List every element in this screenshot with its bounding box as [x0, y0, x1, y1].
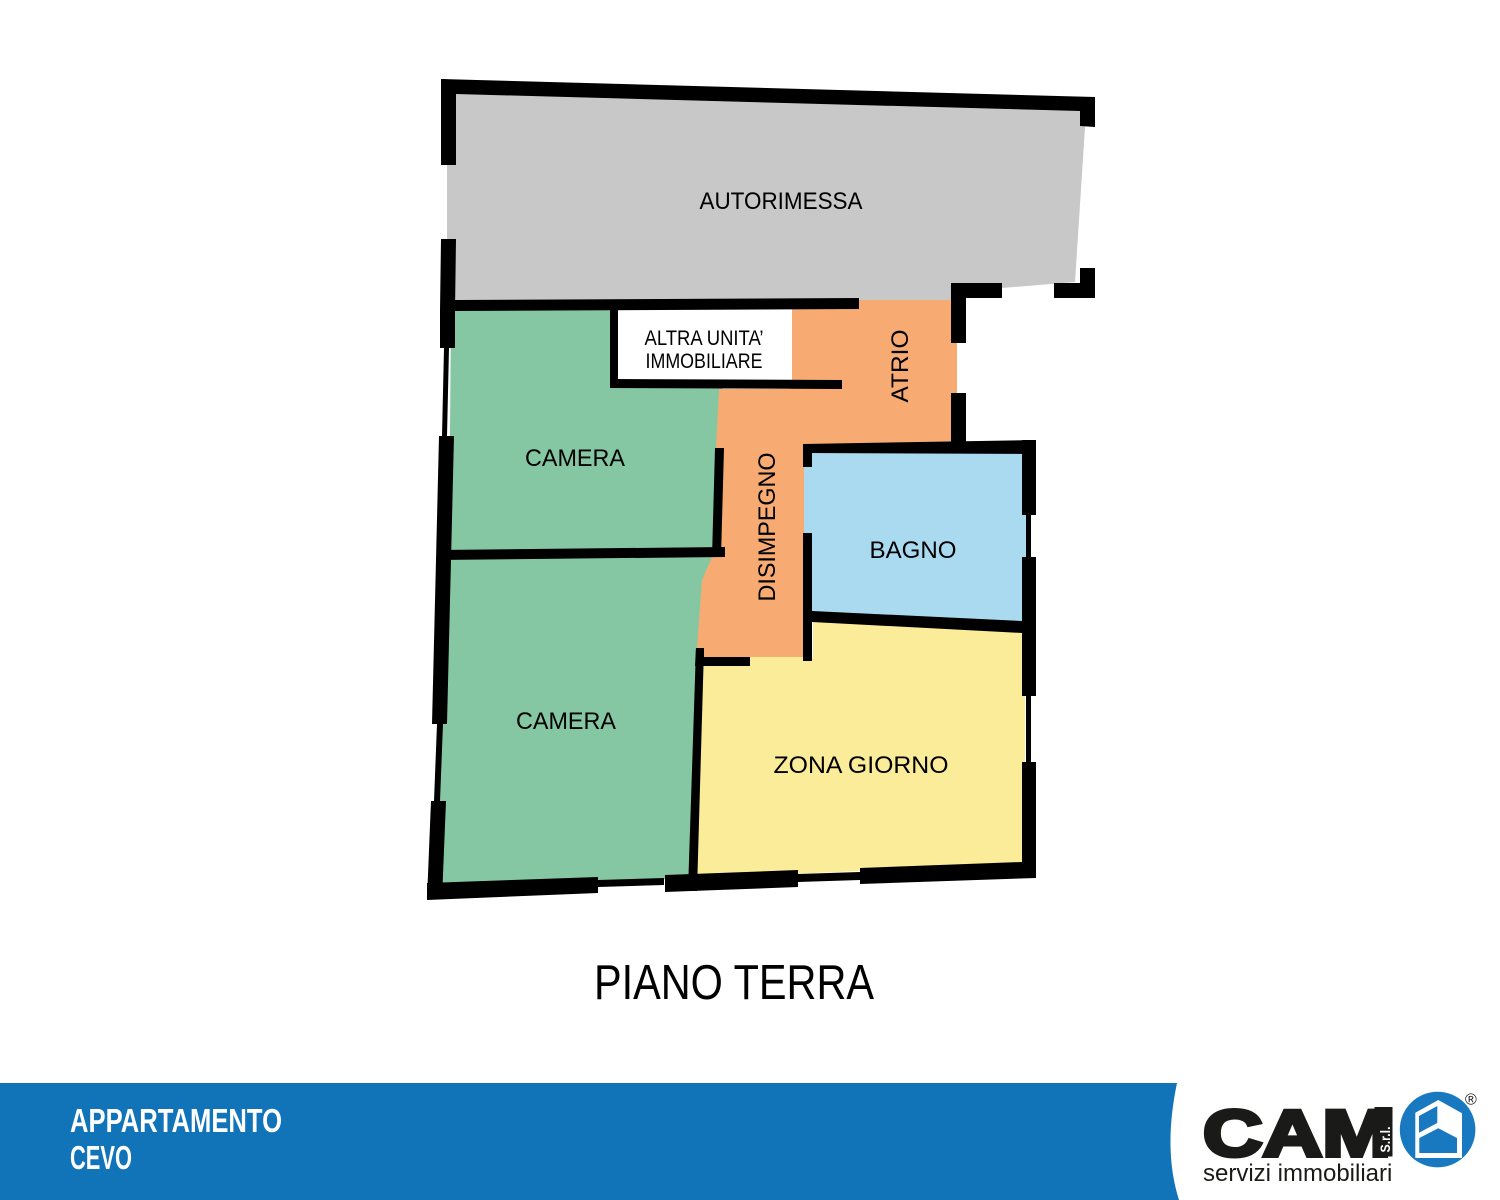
svg-text:servizi immobiliari: servizi immobiliari [1203, 1160, 1392, 1187]
svg-text:PIANO TERRA: PIANO TERRA [594, 956, 874, 1010]
svg-text:ZONA GIORNO: ZONA GIORNO [774, 752, 949, 779]
svg-text:AUTORIMESSA: AUTORIMESSA [700, 188, 863, 215]
svg-text:S.r.l.: S.r.l. [1377, 1127, 1393, 1153]
svg-text:ALTRA UNITA’: ALTRA UNITA’ [645, 327, 764, 350]
svg-text:DISIMPEGNO: DISIMPEGNO [754, 453, 781, 602]
svg-text:ATRIO: ATRIO [887, 330, 914, 403]
svg-text:®: ® [1465, 1092, 1477, 1109]
svg-text:BAGNO: BAGNO [870, 537, 957, 564]
svg-text:CAM: CAM [1203, 1096, 1391, 1170]
svg-text:CAMERA: CAMERA [525, 445, 625, 472]
svg-text:APPARTAMENTO: APPARTAMENTO [70, 1102, 282, 1139]
svg-text:CEVO: CEVO [70, 1139, 132, 1176]
svg-text:IMMOBILIARE: IMMOBILIARE [646, 350, 763, 373]
svg-text:CAMERA: CAMERA [516, 708, 616, 735]
